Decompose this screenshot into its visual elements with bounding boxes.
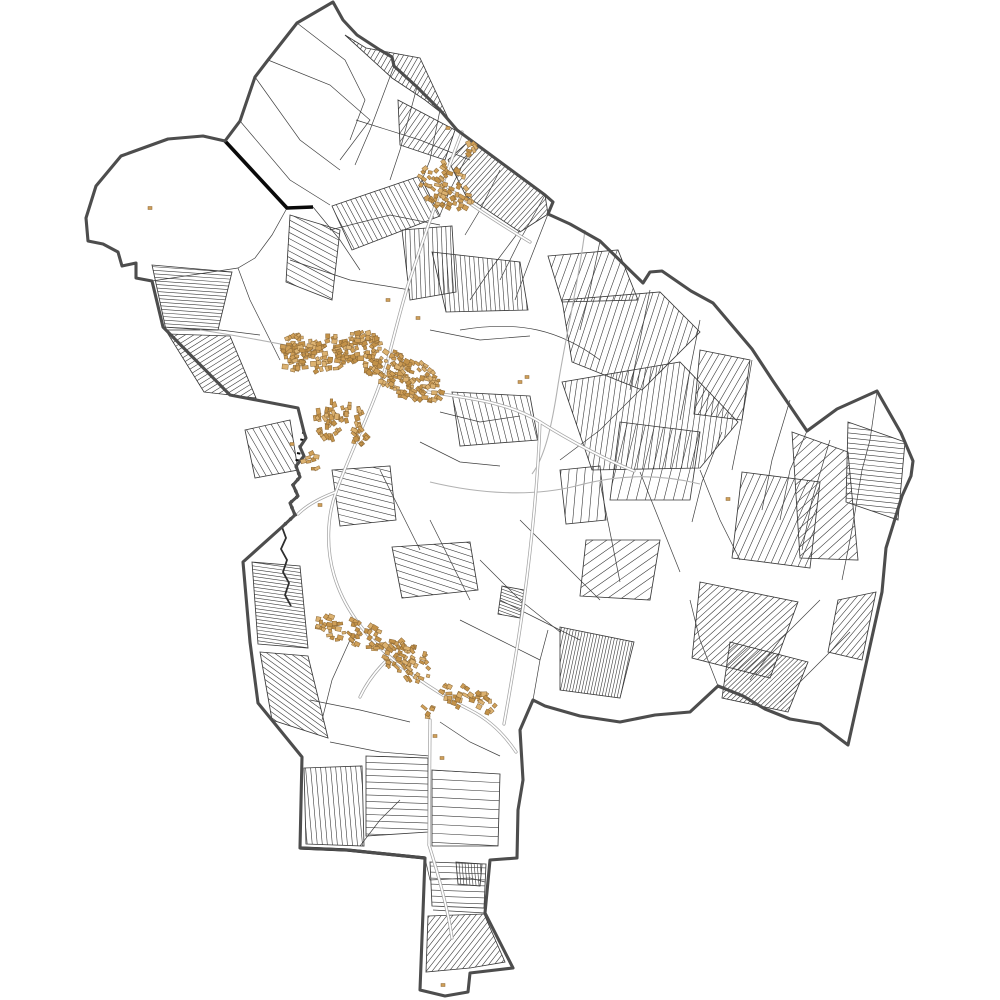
cadastral-map bbox=[0, 0, 1000, 1000]
map-canvas bbox=[0, 0, 1000, 1000]
isolated-buildings bbox=[148, 127, 730, 987]
commune-boundary bbox=[86, 2, 913, 996]
parcel-boundary-lines bbox=[152, 23, 877, 913]
buildings-layer bbox=[280, 140, 497, 719]
